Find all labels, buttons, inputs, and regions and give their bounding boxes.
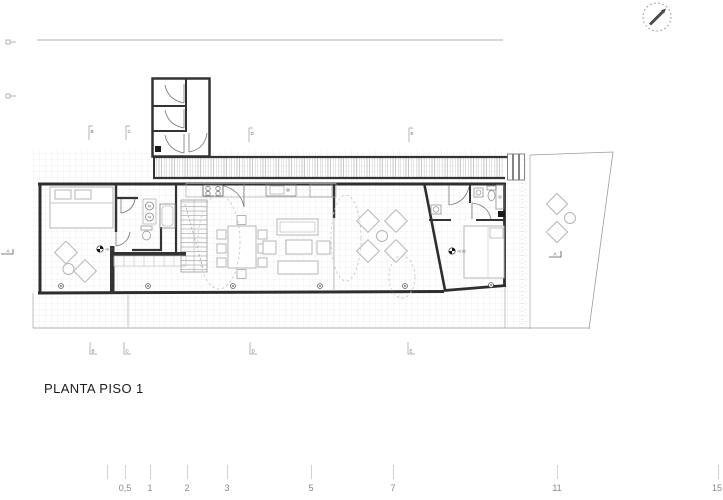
sofa: [278, 261, 318, 274]
fridge: [310, 184, 332, 197]
scale-tick: [187, 465, 188, 479]
section-letter: A: [554, 252, 557, 257]
master-bedroom: [50, 187, 113, 282]
scale-tick: [311, 465, 312, 479]
drawing-sheet: +0.00 +0.00 B C D E B C D E: [0, 0, 723, 500]
section-letter: A: [7, 249, 10, 254]
grid-letter: E: [410, 349, 413, 354]
scale-label: 5: [308, 483, 313, 493]
grid-letter: B: [92, 349, 95, 354]
scale-tick: [107, 465, 108, 479]
master-bathroom: [141, 199, 175, 240]
floor-plan-drawing: +0.00 +0.00 B C D E B C D E: [0, 0, 723, 500]
scale-label: 0,5: [119, 483, 132, 493]
grid-letter: C: [128, 129, 132, 134]
side-table: [63, 264, 74, 275]
scale-tick: [718, 465, 719, 479]
scale-label: 2: [184, 483, 189, 493]
scale-label: 7: [390, 483, 395, 493]
grid-letters-top: B C D E: [91, 129, 414, 136]
dining-table: [228, 226, 256, 268]
scale-tick: [393, 465, 394, 479]
drawing-title: PLANTA PISO 1: [44, 381, 144, 396]
scale-tick: [227, 465, 228, 479]
dining-set: [217, 216, 267, 279]
grid-letter: C: [126, 349, 130, 354]
bed: [464, 226, 504, 278]
level-label: +0.00: [105, 248, 114, 252]
section-marker-left: A: [1, 249, 13, 255]
scale-label: 15: [712, 483, 722, 493]
level-label: +0.00: [457, 250, 466, 254]
level-marker: +0.00: [449, 248, 466, 254]
east-garden: [546, 193, 575, 242]
section-marker-right: A: [549, 251, 561, 257]
terrace: [357, 210, 408, 263]
grid-letter: D: [251, 131, 255, 136]
scale-tick: [150, 465, 151, 479]
scale-label: 1: [147, 483, 152, 493]
scale-tick: [125, 465, 126, 479]
grid-letter: D: [252, 349, 256, 354]
grid-letter: B: [91, 129, 94, 134]
armchair: [55, 241, 78, 264]
armchair: [74, 260, 97, 283]
scale-label: 11: [552, 483, 561, 493]
scale-label: 3: [224, 483, 229, 493]
grid-letters-bottom: B C D E: [92, 349, 413, 354]
scale-tick: [557, 465, 558, 479]
column-markers: [59, 283, 494, 289]
entry-vestibule: [153, 79, 210, 157]
deck-walkway: [153, 154, 525, 180]
grid-letter: E: [411, 131, 414, 136]
kitchen-counter: [186, 184, 336, 198]
coffee-table: [286, 240, 312, 254]
living-room: [263, 219, 330, 274]
north-arrow-icon: [643, 3, 671, 31]
level-marker: +0.00: [97, 246, 114, 252]
